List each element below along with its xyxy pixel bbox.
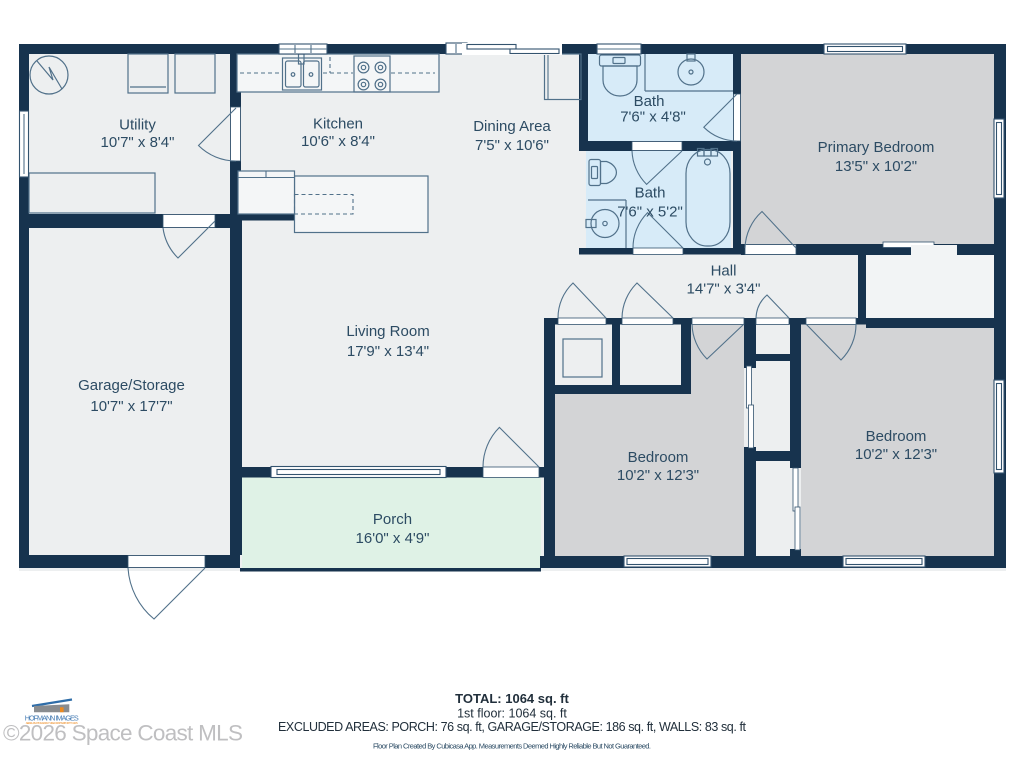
svg-text:Bedroom: Bedroom — [866, 428, 927, 445]
svg-text:17'9" x 13'4": 17'9" x 13'4" — [347, 343, 429, 360]
svg-text:14'7" x 3'4": 14'7" x 3'4" — [687, 281, 761, 298]
svg-text:Primary Bedroom: Primary Bedroom — [818, 139, 935, 156]
svg-text:1st floor: 1064 sq. ft: 1st floor: 1064 sq. ft — [457, 707, 567, 721]
svg-text:13'5" x 10'2": 13'5" x 10'2" — [835, 158, 917, 175]
svg-text:7'5" x 10'6": 7'5" x 10'6" — [475, 137, 549, 154]
svg-text:10'2" x 12'3": 10'2" x 12'3" — [855, 446, 937, 463]
svg-text:©2026 Space Coast MLS: ©2026 Space Coast MLS — [3, 721, 243, 746]
svg-text:Utility: Utility — [119, 117, 156, 134]
svg-text:Dining Area: Dining Area — [473, 118, 551, 135]
svg-text:TOTAL: 1064 sq. ft: TOTAL: 1064 sq. ft — [455, 691, 569, 706]
svg-text:16'0" x 4'9": 16'0" x 4'9" — [356, 530, 430, 547]
svg-text:10'6" x 8'4": 10'6" x 8'4" — [301, 133, 375, 150]
svg-text:Bath: Bath — [635, 185, 666, 202]
svg-text:Bedroom: Bedroom — [628, 449, 689, 466]
svg-text:Bath: Bath — [634, 93, 665, 110]
svg-text:Floor Plan Created By Cubicasa: Floor Plan Created By Cubicasa App. Meas… — [373, 742, 651, 751]
svg-text:Porch: Porch — [373, 511, 412, 528]
svg-text:10'2" x 12'3": 10'2" x 12'3" — [617, 467, 699, 484]
svg-text:Garage/Storage: Garage/Storage — [78, 377, 185, 394]
svg-text:10'7" x 8'4": 10'7" x 8'4" — [101, 134, 175, 151]
svg-text:Hall: Hall — [711, 263, 737, 280]
svg-text:Living Room: Living Room — [346, 323, 429, 340]
svg-text:7'6" x 5'2": 7'6" x 5'2" — [617, 204, 683, 221]
svg-text:10'7" x 17'7": 10'7" x 17'7" — [90, 398, 172, 415]
svg-text:EXCLUDED AREAS: PORCH: 76 sq.: EXCLUDED AREAS: PORCH: 76 sq. ft, GARAGE… — [278, 720, 747, 734]
svg-text:7'6" x 4'8": 7'6" x 4'8" — [620, 109, 686, 126]
svg-text:Kitchen: Kitchen — [313, 116, 363, 133]
